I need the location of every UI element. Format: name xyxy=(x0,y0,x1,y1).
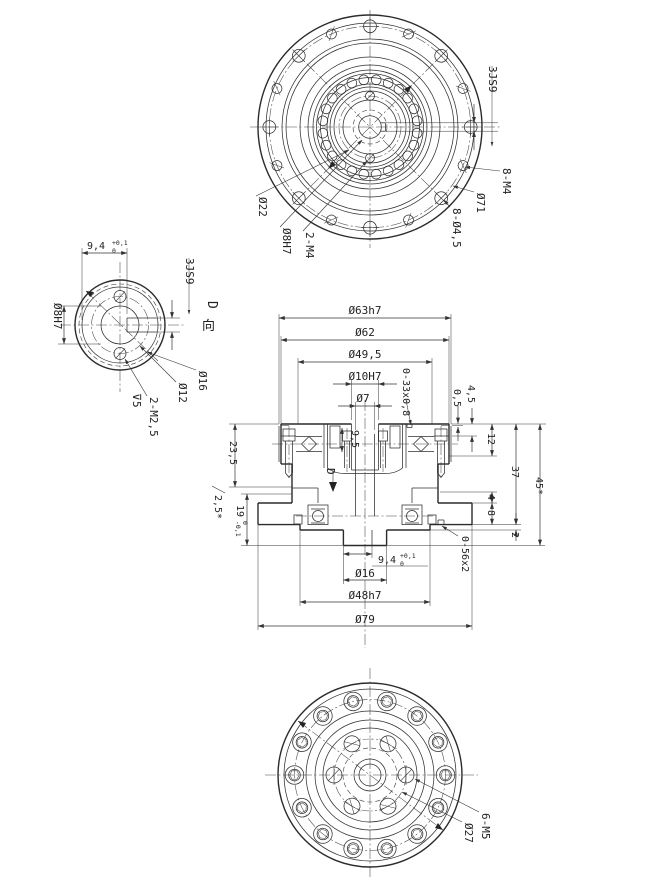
bore-label: Ø8H7 xyxy=(280,228,293,255)
bottom-screws-label: 6-M5 xyxy=(479,813,492,840)
dim-kdepth-low: 0 xyxy=(400,560,404,568)
bottom-bc-label: Ø27 xyxy=(462,823,475,843)
d-view-callouts: Ø16 Ø12 2-M2,5 ⊽5 xyxy=(125,346,209,437)
hub-bc-label: Ø22 xyxy=(256,197,269,217)
d-shaft-label: Ø16 xyxy=(196,371,209,391)
section-view-arrow: D xyxy=(324,468,337,492)
view-direction-arrow xyxy=(329,482,337,492)
dim-d49: Ø49,5 xyxy=(348,348,381,361)
oring-bottom-label: 0-56x2 xyxy=(459,536,470,572)
dim-95: 9,5 xyxy=(349,430,360,448)
d-depth-tol-low: 0 xyxy=(112,247,116,255)
dim-25: 2,5* xyxy=(212,495,223,519)
dim-step-small: 0,5 xyxy=(451,389,462,407)
dim-d48: Ø48h7 xyxy=(348,589,381,602)
dim-kdepth: 9,4 xyxy=(378,555,396,566)
dim-45: 45* xyxy=(533,477,544,495)
dim-d10: Ø10H7 xyxy=(348,370,381,383)
d-view: 9,4 +0,1 0 3JS9 Ø8H7 Ø16 Ø12 2-M2,5 xyxy=(51,239,219,437)
d-view-bore-dim: Ø8H7 xyxy=(51,303,101,344)
dim-2: 2 xyxy=(509,532,520,538)
drawing-sheet: 3JS9 Ø22 Ø8H7 2-M4 8-M4 Ø71 8-Ø4,5 xyxy=(0,0,661,881)
dim-235: 23,5 xyxy=(227,441,238,465)
through-holes-label: 8-Ø4,5 xyxy=(450,208,463,248)
d-screw-depth-label: ⊽5 xyxy=(130,393,143,408)
section-left-half xyxy=(258,424,365,546)
d-bore-label: Ø8H7 xyxy=(51,303,64,330)
top-view-callouts: Ø22 Ø8H7 2-M4 8-M4 Ø71 8-Ø4,5 xyxy=(256,140,513,259)
dim-12: 12 xyxy=(485,433,496,445)
section-view: Ø63h7 Ø62 Ø49,5 Ø10H7 Ø7 0-33x0,8 xyxy=(212,304,546,648)
thread-holes-label: 8-M4 xyxy=(500,168,513,195)
dim-kdepth-up: +0,1 xyxy=(400,552,416,560)
bolt-circle-label: Ø71 xyxy=(474,193,487,213)
drawing-canvas: 3JS9 Ø22 Ø8H7 2-M4 8-M4 Ø71 8-Ø4,5 xyxy=(0,0,661,881)
view-arrow-letter: D xyxy=(324,468,337,475)
top-view: 3JS9 Ø22 Ø8H7 2-M4 8-M4 Ø71 8-Ø4,5 xyxy=(250,10,513,259)
dim-4: 4 xyxy=(485,494,496,500)
section-step-dims: 0,5 4,5 xyxy=(451,385,477,452)
dim-d7: Ø7 xyxy=(356,392,369,405)
dim-19-tol-low: -0,1 xyxy=(234,521,242,537)
dim-d63: Ø63h7 xyxy=(348,304,381,317)
dim-19: 19 xyxy=(234,505,245,517)
d-keyway-label: 3JS9 xyxy=(183,258,196,285)
d-view-title: D 向 xyxy=(202,301,219,334)
dim-step-big: 4,5 xyxy=(465,385,476,403)
oring-top-label: 0-33x0,8 xyxy=(400,368,411,416)
section-top-dims: Ø63h7 Ø62 Ø49,5 Ø10H7 Ø7 0-33x0,8 xyxy=(279,304,451,430)
d-view-title-char: 向 xyxy=(202,318,215,334)
dim-d62: Ø62 xyxy=(355,326,375,339)
bottom-view: 6-M5 Ø27 xyxy=(265,668,492,879)
dim-d79: Ø79 xyxy=(355,613,375,626)
d-bc-label: Ø12 xyxy=(176,383,189,403)
d-screws-label: 2-M2,5 xyxy=(147,397,160,437)
d-depth-tol-up: +0,1 xyxy=(112,239,128,247)
section-right-dims: 12 4 8 37 2 45* xyxy=(387,424,546,546)
dim-d16: Ø16 xyxy=(355,567,375,580)
d-depth-value: 9,4 xyxy=(87,241,105,252)
hub-screws-label: 2-M4 xyxy=(303,232,316,259)
dim-8: 8 xyxy=(485,510,496,516)
dim-37: 37 xyxy=(509,466,520,478)
top-keyway-label: 3JS9 xyxy=(486,66,499,93)
d-view-title-letter: D xyxy=(204,301,219,309)
